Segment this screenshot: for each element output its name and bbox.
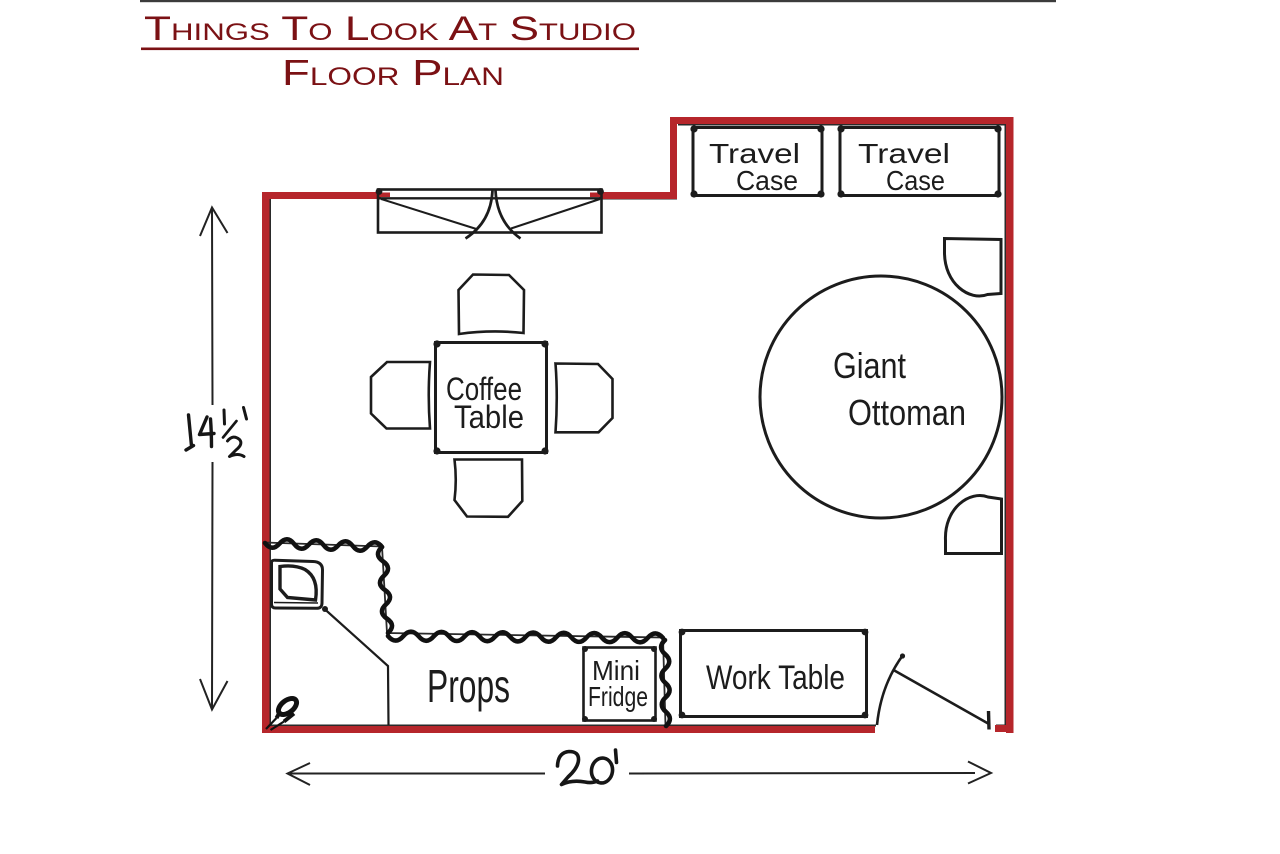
svg-text:Props: Props — [427, 660, 510, 712]
svg-text:Things To Look At Studio: Things To Look At Studio — [144, 10, 636, 48]
svg-text:Case: Case — [736, 165, 798, 196]
svg-text:Floor Plan: Floor Plan — [282, 52, 504, 93]
svg-text:Work Table: Work Table — [706, 659, 845, 697]
svg-text:Giant: Giant — [833, 345, 906, 386]
svg-text:Table: Table — [454, 399, 524, 435]
svg-text:Fridge: Fridge — [588, 681, 648, 712]
svg-text:Ottoman: Ottoman — [848, 392, 966, 433]
svg-text:Case: Case — [886, 165, 945, 196]
